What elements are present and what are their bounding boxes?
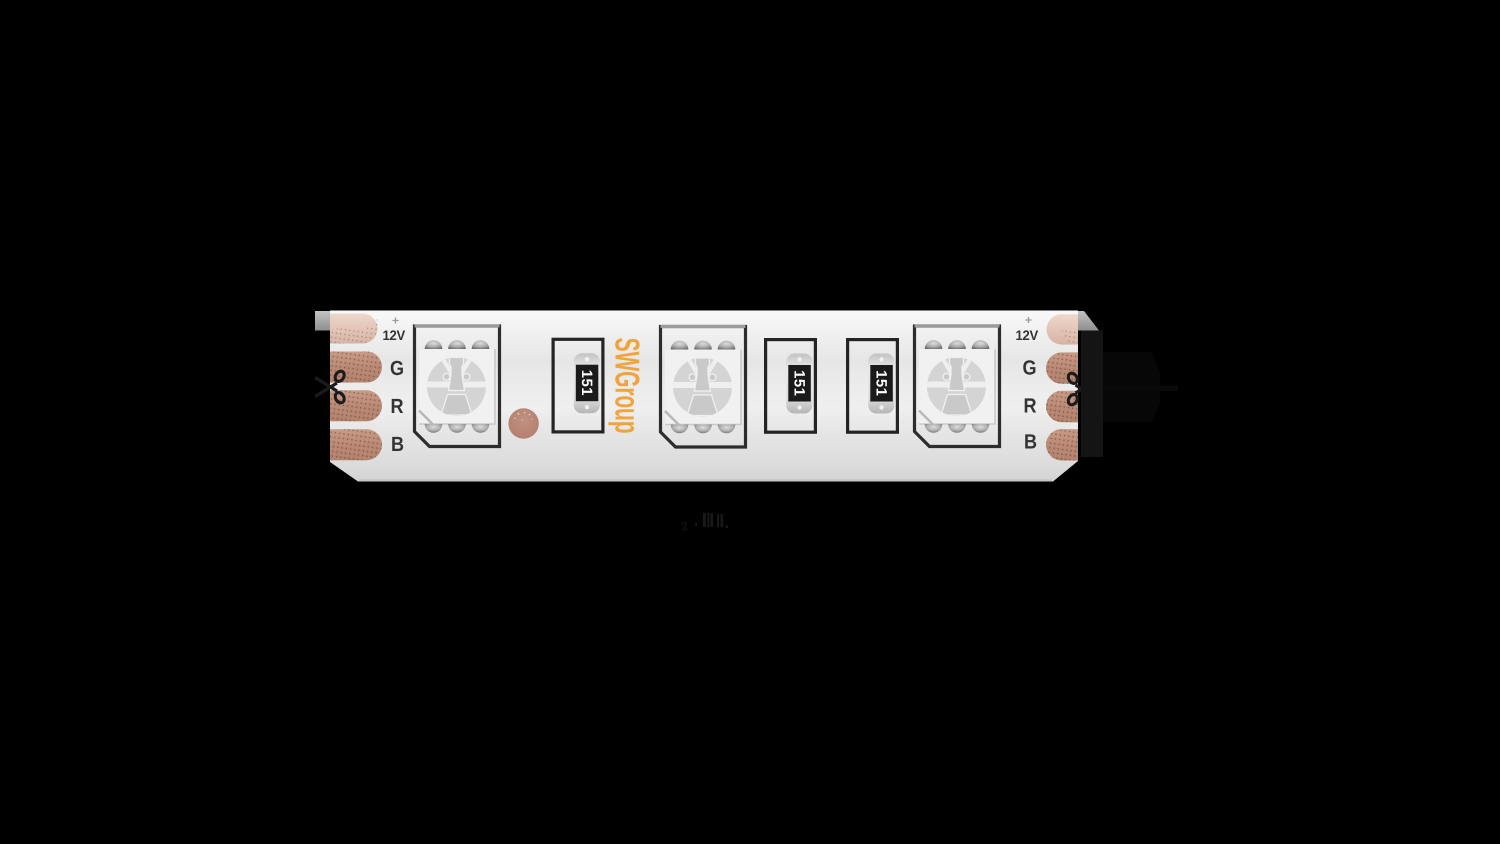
svg-text:R: R [1023, 394, 1036, 417]
svg-text:R: R [390, 395, 403, 418]
svg-text:G: G [1022, 356, 1036, 379]
svg-text:G: G [390, 357, 404, 380]
svg-text:B: B [1024, 431, 1037, 454]
svg-text:B: B [391, 433, 404, 456]
svg-text:+: + [392, 314, 399, 328]
svg-text:12V: 12V [383, 328, 407, 343]
svg-text:SWGroup: SWGroup [607, 338, 645, 434]
svg-text:12V: 12V [1016, 328, 1040, 343]
svg-text:+: + [1025, 313, 1032, 327]
